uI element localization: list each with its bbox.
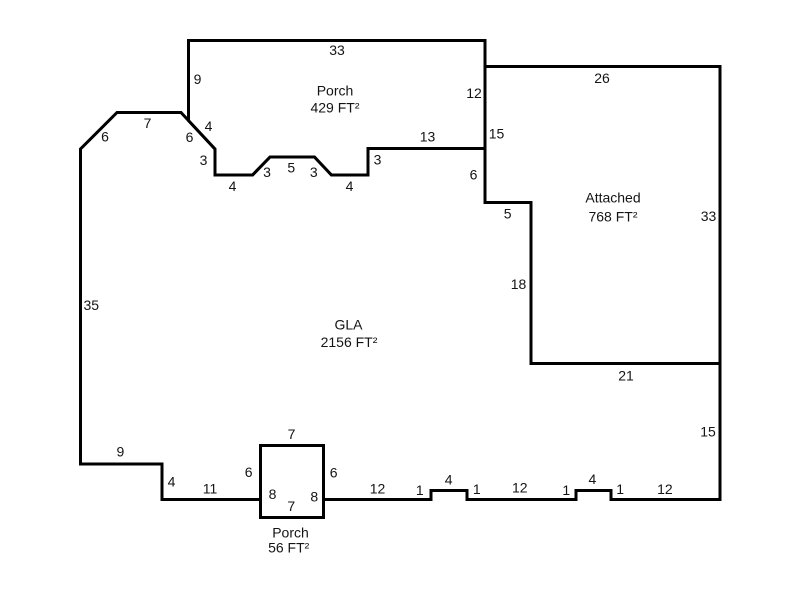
svg-text:12: 12 bbox=[512, 480, 528, 496]
svg-text:33: 33 bbox=[701, 208, 717, 224]
svg-text:6: 6 bbox=[330, 464, 338, 480]
svg-text:1: 1 bbox=[473, 481, 481, 497]
svg-text:26: 26 bbox=[594, 70, 610, 86]
svg-text:1: 1 bbox=[562, 482, 570, 498]
svg-text:4: 4 bbox=[168, 474, 176, 490]
svg-text:1: 1 bbox=[616, 481, 624, 497]
svg-text:8: 8 bbox=[269, 486, 277, 502]
svg-text:8: 8 bbox=[310, 489, 318, 505]
svg-text:12: 12 bbox=[370, 481, 386, 497]
svg-text:Porch: Porch bbox=[272, 524, 309, 540]
svg-text:1: 1 bbox=[416, 482, 424, 498]
svg-text:12: 12 bbox=[657, 481, 673, 497]
svg-text:33: 33 bbox=[329, 42, 345, 58]
svg-text:6: 6 bbox=[101, 129, 109, 145]
svg-text:6: 6 bbox=[470, 167, 478, 183]
svg-text:4: 4 bbox=[445, 472, 453, 488]
svg-text:12: 12 bbox=[466, 85, 482, 101]
svg-text:5: 5 bbox=[287, 160, 295, 176]
svg-text:3: 3 bbox=[374, 152, 382, 168]
svg-text:5: 5 bbox=[504, 205, 512, 221]
svg-text:4: 4 bbox=[589, 471, 597, 487]
svg-text:9: 9 bbox=[117, 444, 125, 460]
svg-text:7: 7 bbox=[144, 115, 152, 131]
svg-text:429 FT²: 429 FT² bbox=[310, 100, 359, 116]
svg-text:4: 4 bbox=[205, 118, 213, 134]
svg-text:13: 13 bbox=[420, 129, 436, 145]
svg-text:4: 4 bbox=[346, 178, 354, 194]
svg-text:18: 18 bbox=[511, 276, 527, 292]
svg-text:3: 3 bbox=[263, 164, 271, 180]
svg-text:56 FT²: 56 FT² bbox=[268, 540, 310, 556]
svg-text:GLA: GLA bbox=[334, 317, 363, 333]
svg-text:7: 7 bbox=[287, 498, 295, 514]
svg-text:4: 4 bbox=[229, 178, 237, 194]
svg-text:768 FT²: 768 FT² bbox=[588, 208, 637, 224]
svg-text:15: 15 bbox=[700, 424, 716, 440]
svg-text:11: 11 bbox=[203, 481, 218, 497]
svg-text:21: 21 bbox=[618, 367, 634, 383]
svg-text:6: 6 bbox=[186, 129, 194, 145]
svg-text:6: 6 bbox=[245, 464, 253, 480]
svg-text:15: 15 bbox=[489, 126, 505, 142]
svg-text:9: 9 bbox=[194, 71, 202, 87]
svg-text:7: 7 bbox=[288, 426, 296, 442]
svg-text:35: 35 bbox=[83, 297, 99, 313]
svg-text:2156 FT²: 2156 FT² bbox=[321, 334, 378, 350]
svg-text:3: 3 bbox=[200, 152, 208, 168]
svg-text:Porch: Porch bbox=[317, 83, 354, 99]
svg-text:Attached: Attached bbox=[585, 190, 640, 206]
svg-text:3: 3 bbox=[310, 164, 318, 180]
